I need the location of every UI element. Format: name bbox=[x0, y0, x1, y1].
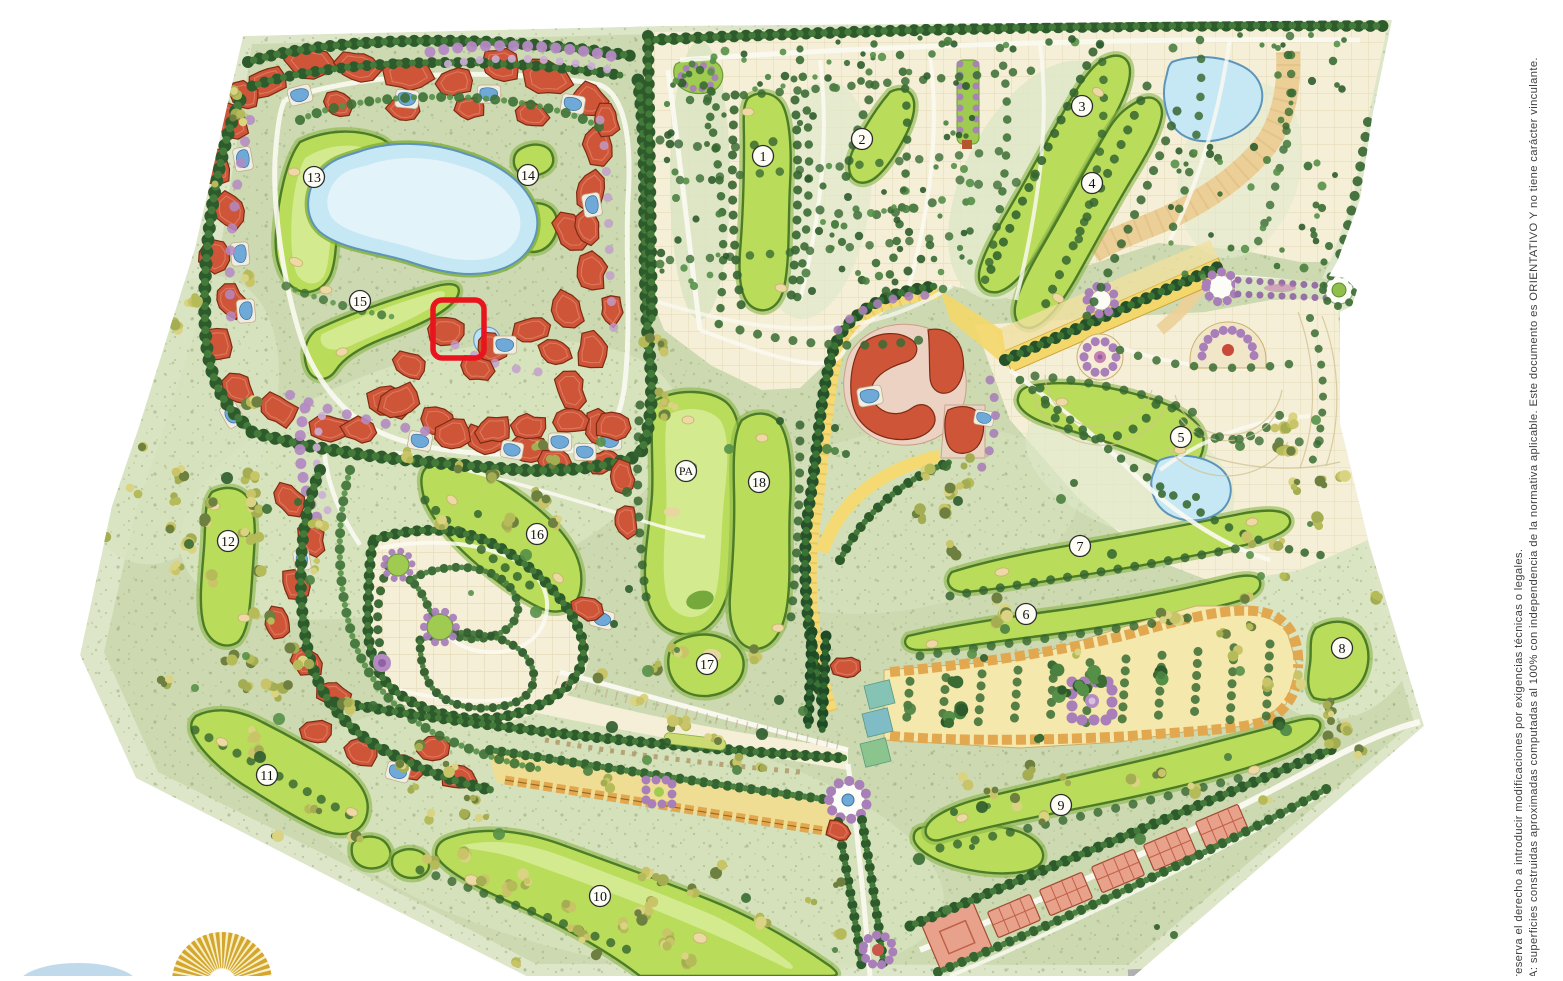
svg-text:reserva el derecho a introduci: reserva el derecho a introducir modifica… bbox=[1513, 549, 1525, 976]
svg-text:11: 11 bbox=[260, 769, 273, 784]
svg-text:9: 9 bbox=[1058, 799, 1065, 814]
svg-text:17: 17 bbox=[700, 658, 714, 673]
svg-text:16: 16 bbox=[530, 528, 544, 543]
svg-text:10: 10 bbox=[593, 890, 607, 905]
svg-text:15: 15 bbox=[353, 295, 367, 310]
svg-text:7: 7 bbox=[1077, 540, 1084, 555]
svg-text:18: 18 bbox=[752, 476, 766, 491]
svg-text:A: superficies construidas apr: A: superficies construidas aproximadas c… bbox=[1528, 57, 1540, 976]
svg-text:2: 2 bbox=[859, 133, 866, 148]
svg-text:3: 3 bbox=[1079, 100, 1086, 115]
svg-text:1: 1 bbox=[760, 150, 767, 165]
svg-text:14: 14 bbox=[521, 169, 535, 184]
svg-text:8: 8 bbox=[1339, 642, 1346, 657]
svg-text:5: 5 bbox=[1178, 431, 1185, 446]
svg-text:13: 13 bbox=[307, 171, 321, 186]
svg-text:6: 6 bbox=[1023, 608, 1030, 623]
svg-text:PA: PA bbox=[679, 464, 694, 478]
svg-text:12: 12 bbox=[221, 535, 235, 550]
svg-text:4: 4 bbox=[1089, 177, 1096, 192]
